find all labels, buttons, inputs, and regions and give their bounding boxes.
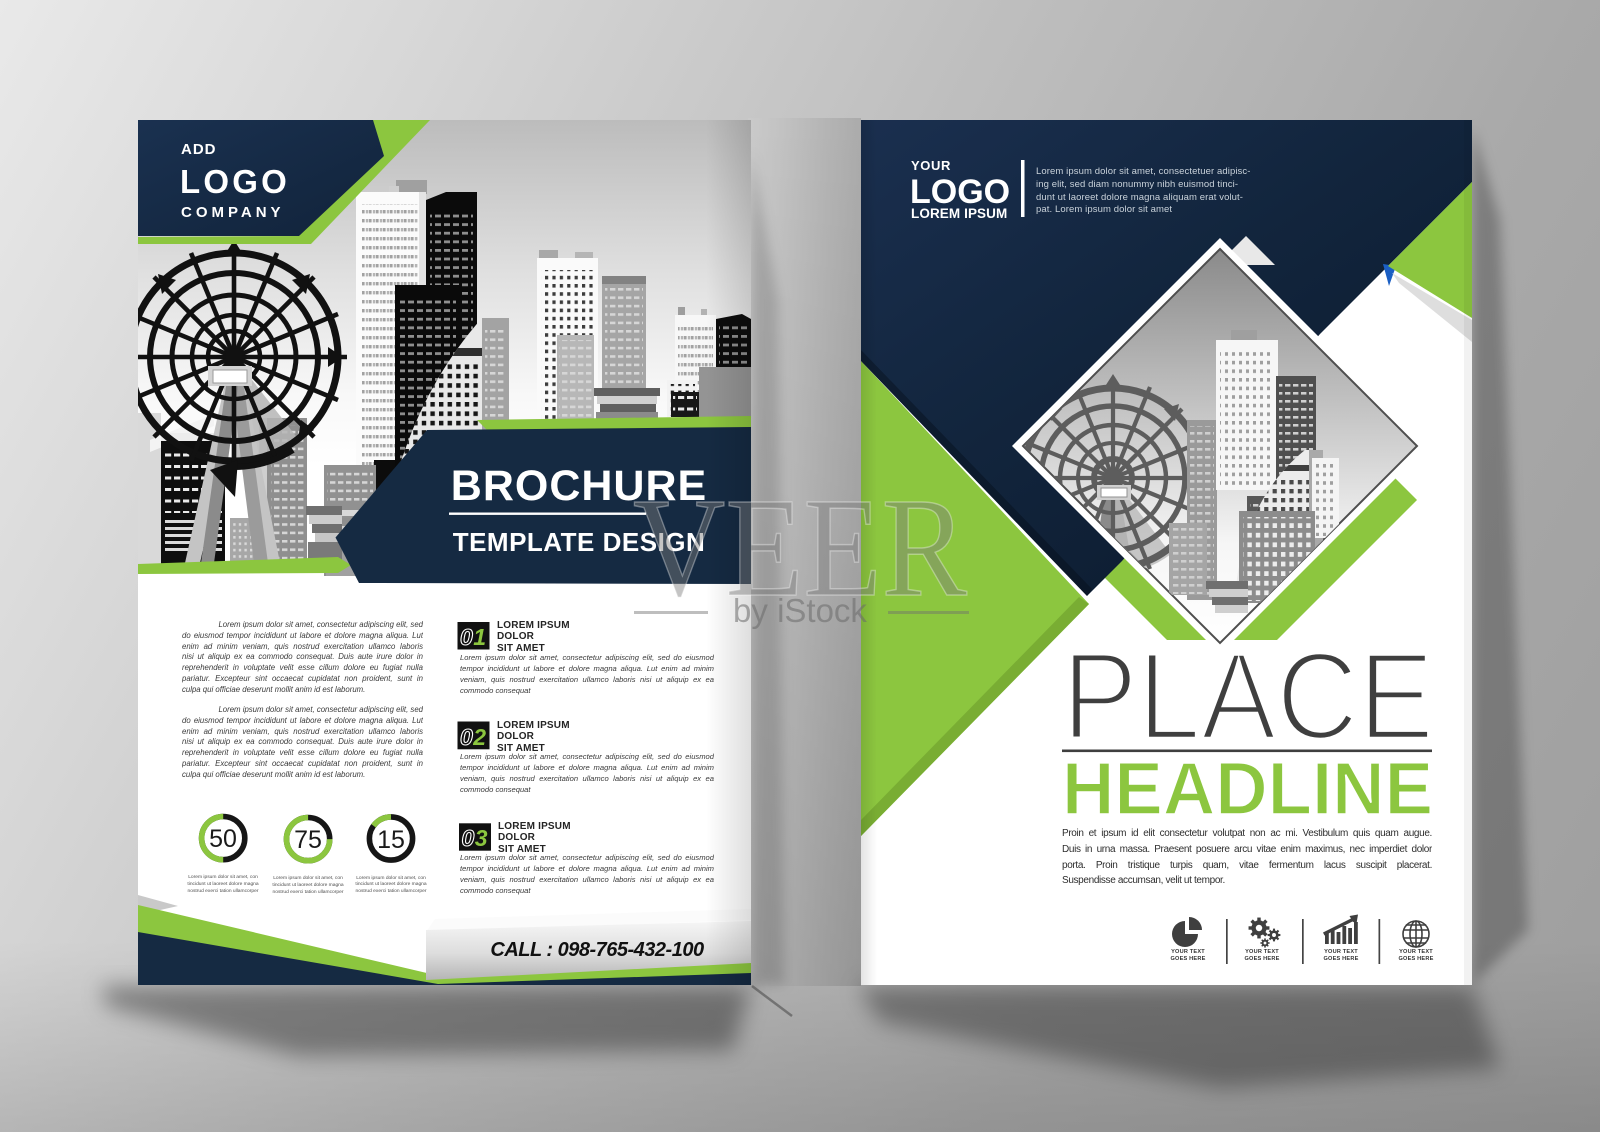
svg-text:by iStock: by iStock <box>733 592 867 629</box>
